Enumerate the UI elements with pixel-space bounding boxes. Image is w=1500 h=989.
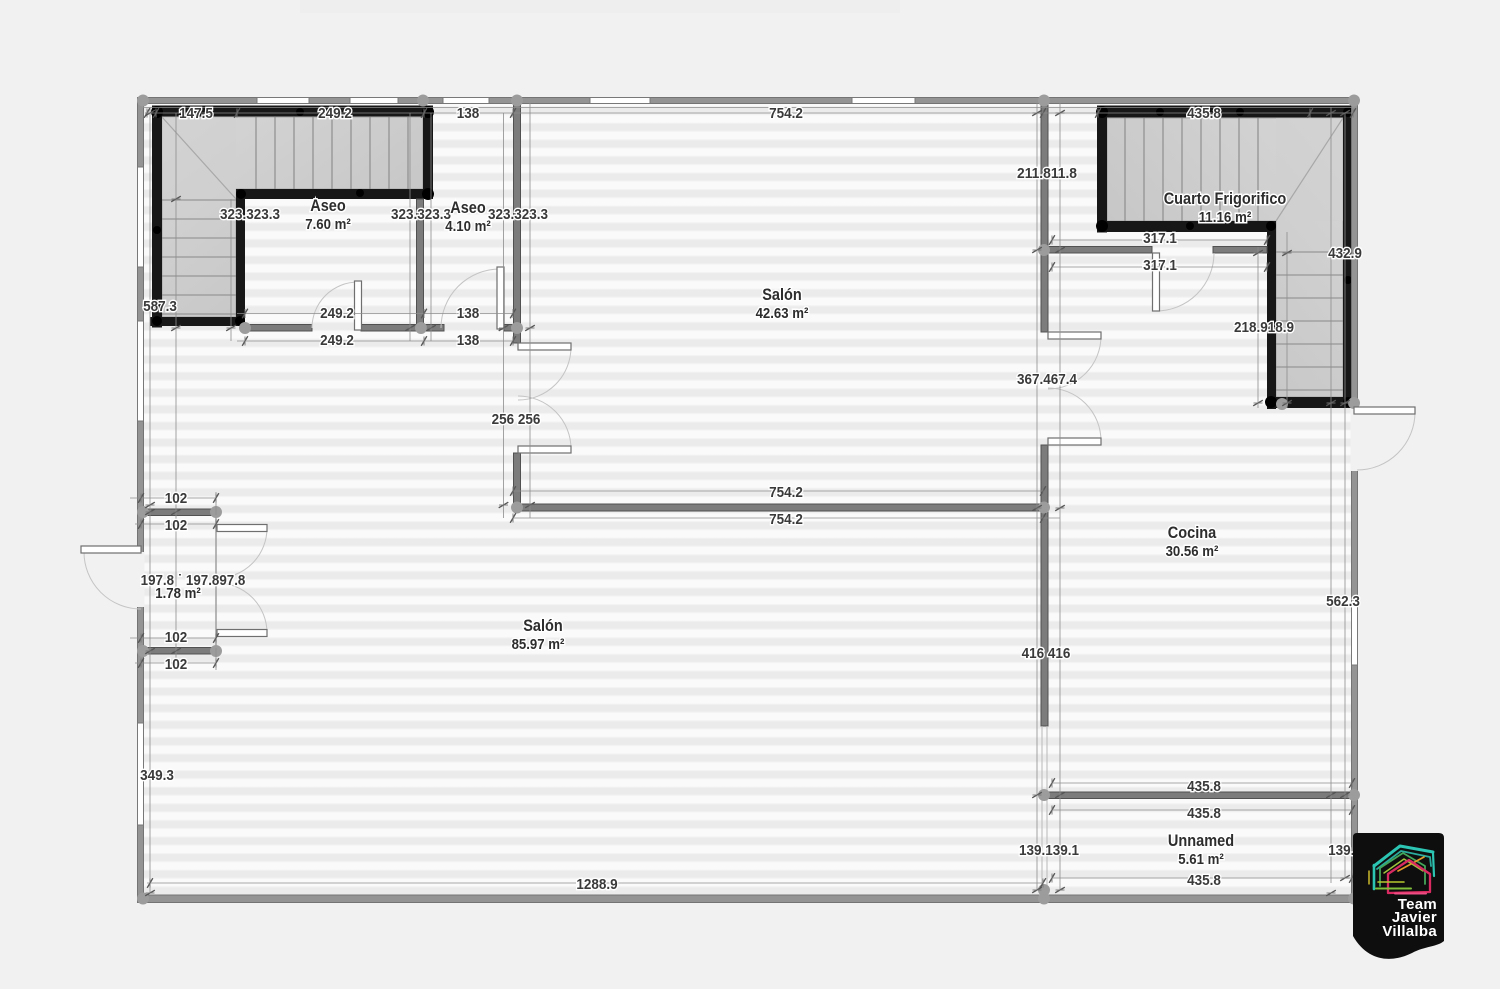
svg-text:754.2: 754.2 xyxy=(769,105,803,122)
svg-text:249.2: 249.2 xyxy=(320,305,354,322)
svg-text:30.56 m²: 30.56 m² xyxy=(1166,543,1219,560)
svg-text:754.2: 754.2 xyxy=(769,484,803,501)
svg-text:435.8: 435.8 xyxy=(1187,778,1221,795)
svg-text:Aseo: Aseo xyxy=(450,199,486,217)
svg-text:562.3: 562.3 xyxy=(1326,593,1360,610)
svg-text:Unnamed: Unnamed xyxy=(1168,832,1234,850)
svg-text:138: 138 xyxy=(457,105,480,122)
svg-text:323.323.3: 323.323.3 xyxy=(488,206,548,223)
svg-text:42.63 m²: 42.63 m² xyxy=(756,305,809,322)
svg-text:4.10 m²: 4.10 m² xyxy=(445,218,491,235)
svg-text:249.2: 249.2 xyxy=(318,105,352,122)
svg-text:11.16 m²: 11.16 m² xyxy=(1199,209,1252,226)
svg-text:432.9: 432.9 xyxy=(1328,245,1362,262)
svg-text:Salón: Salón xyxy=(523,617,563,635)
svg-text:218.918.9: 218.918.9 xyxy=(1234,319,1294,336)
svg-text:102: 102 xyxy=(165,629,188,646)
svg-text:249.2: 249.2 xyxy=(320,332,354,349)
svg-text:102: 102 xyxy=(165,517,188,534)
svg-text:1288.9: 1288.9 xyxy=(576,876,617,893)
svg-text:85.97 m²: 85.97 m² xyxy=(512,636,565,653)
svg-text:587.3: 587.3 xyxy=(143,298,177,315)
svg-text:435.8: 435.8 xyxy=(1187,872,1221,889)
svg-text:323.323.3: 323.323.3 xyxy=(391,206,451,223)
svg-text:416 416: 416 416 xyxy=(1022,645,1071,662)
svg-text:754.2: 754.2 xyxy=(769,511,803,528)
svg-text:435.8: 435.8 xyxy=(1187,805,1221,822)
svg-text:Salón: Salón xyxy=(762,286,802,304)
svg-text:317.1: 317.1 xyxy=(1143,257,1177,274)
svg-text:Cocina: Cocina xyxy=(1168,524,1217,542)
svg-text:5.61 m²: 5.61 m² xyxy=(1178,851,1224,868)
svg-text:7.60 m²: 7.60 m² xyxy=(305,216,351,233)
svg-text:317.1: 317.1 xyxy=(1143,230,1177,247)
svg-text:Villalba: Villalba xyxy=(1382,923,1437,940)
svg-text:Cuarto Frigorifico: Cuarto Frigorifico xyxy=(1164,190,1287,208)
svg-text:367.467.4: 367.467.4 xyxy=(1017,371,1078,388)
svg-text:147.5: 147.5 xyxy=(179,105,213,122)
svg-text:138: 138 xyxy=(457,332,480,349)
svg-text:323.323.3: 323.323.3 xyxy=(220,206,280,223)
svg-text:139.139.1: 139.139.1 xyxy=(1019,842,1079,859)
svg-text:349.3: 349.3 xyxy=(140,767,174,784)
svg-text:256 256: 256 256 xyxy=(492,411,541,428)
svg-text:435.8: 435.8 xyxy=(1187,105,1221,122)
svg-text:211.811.8: 211.811.8 xyxy=(1017,165,1077,182)
svg-text:Aseo: Aseo xyxy=(310,197,346,215)
svg-text:1.78 m²: 1.78 m² xyxy=(155,585,201,602)
svg-text:102: 102 xyxy=(165,490,188,507)
svg-text:102: 102 xyxy=(165,656,188,673)
svg-text:138: 138 xyxy=(457,305,480,322)
